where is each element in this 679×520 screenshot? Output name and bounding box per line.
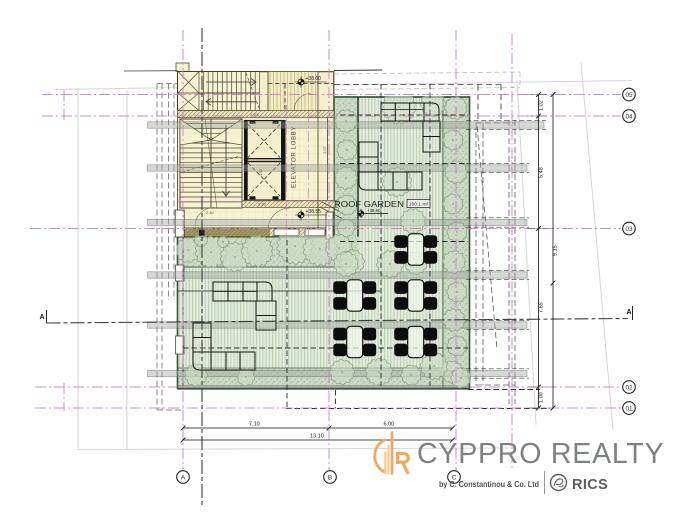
svg-text:by C. Constantinou & Co. Ltd: by C. Constantinou & Co. Ltd [439, 479, 539, 489]
svg-text:150.1 m²: 150.1 m² [409, 202, 429, 207]
svg-text:CYPPRO REALTY: CYPPRO REALTY [417, 438, 664, 470]
svg-text:05: 05 [625, 92, 633, 99]
svg-text:RICS: RICS [572, 477, 608, 493]
svg-text:5.48: 5.48 [539, 167, 545, 178]
svg-text:9.15: 9.15 [553, 245, 559, 256]
svg-text:02: 02 [625, 384, 633, 391]
svg-text:13.10: 13.10 [310, 434, 324, 440]
svg-text:A: A [40, 314, 45, 321]
svg-text:B: B [328, 474, 332, 481]
svg-text:2.40: 2.40 [206, 210, 215, 215]
svg-text:7.65: 7.65 [539, 302, 545, 313]
svg-text:A: A [627, 309, 632, 316]
svg-text:04: 04 [625, 113, 633, 120]
svg-text:7.10: 7.10 [249, 422, 260, 428]
svg-text:+38.60: +38.60 [367, 208, 381, 213]
svg-text:03: 03 [625, 226, 633, 233]
svg-text:A: A [181, 474, 186, 481]
svg-text:6.00: 6.00 [384, 422, 395, 428]
svg-text:1.02: 1.02 [539, 100, 545, 111]
svg-text:ELEVATOR LOBBY: ELEVATOR LOBBY [291, 126, 298, 188]
svg-text:2.30: 2.30 [258, 201, 267, 206]
svg-text:1.07: 1.07 [322, 145, 327, 154]
svg-text:+38.55: +38.55 [306, 209, 322, 215]
svg-text:1.00: 1.00 [539, 392, 545, 403]
svg-text:01: 01 [625, 405, 633, 412]
svg-text:+38.60: +38.60 [306, 76, 322, 82]
